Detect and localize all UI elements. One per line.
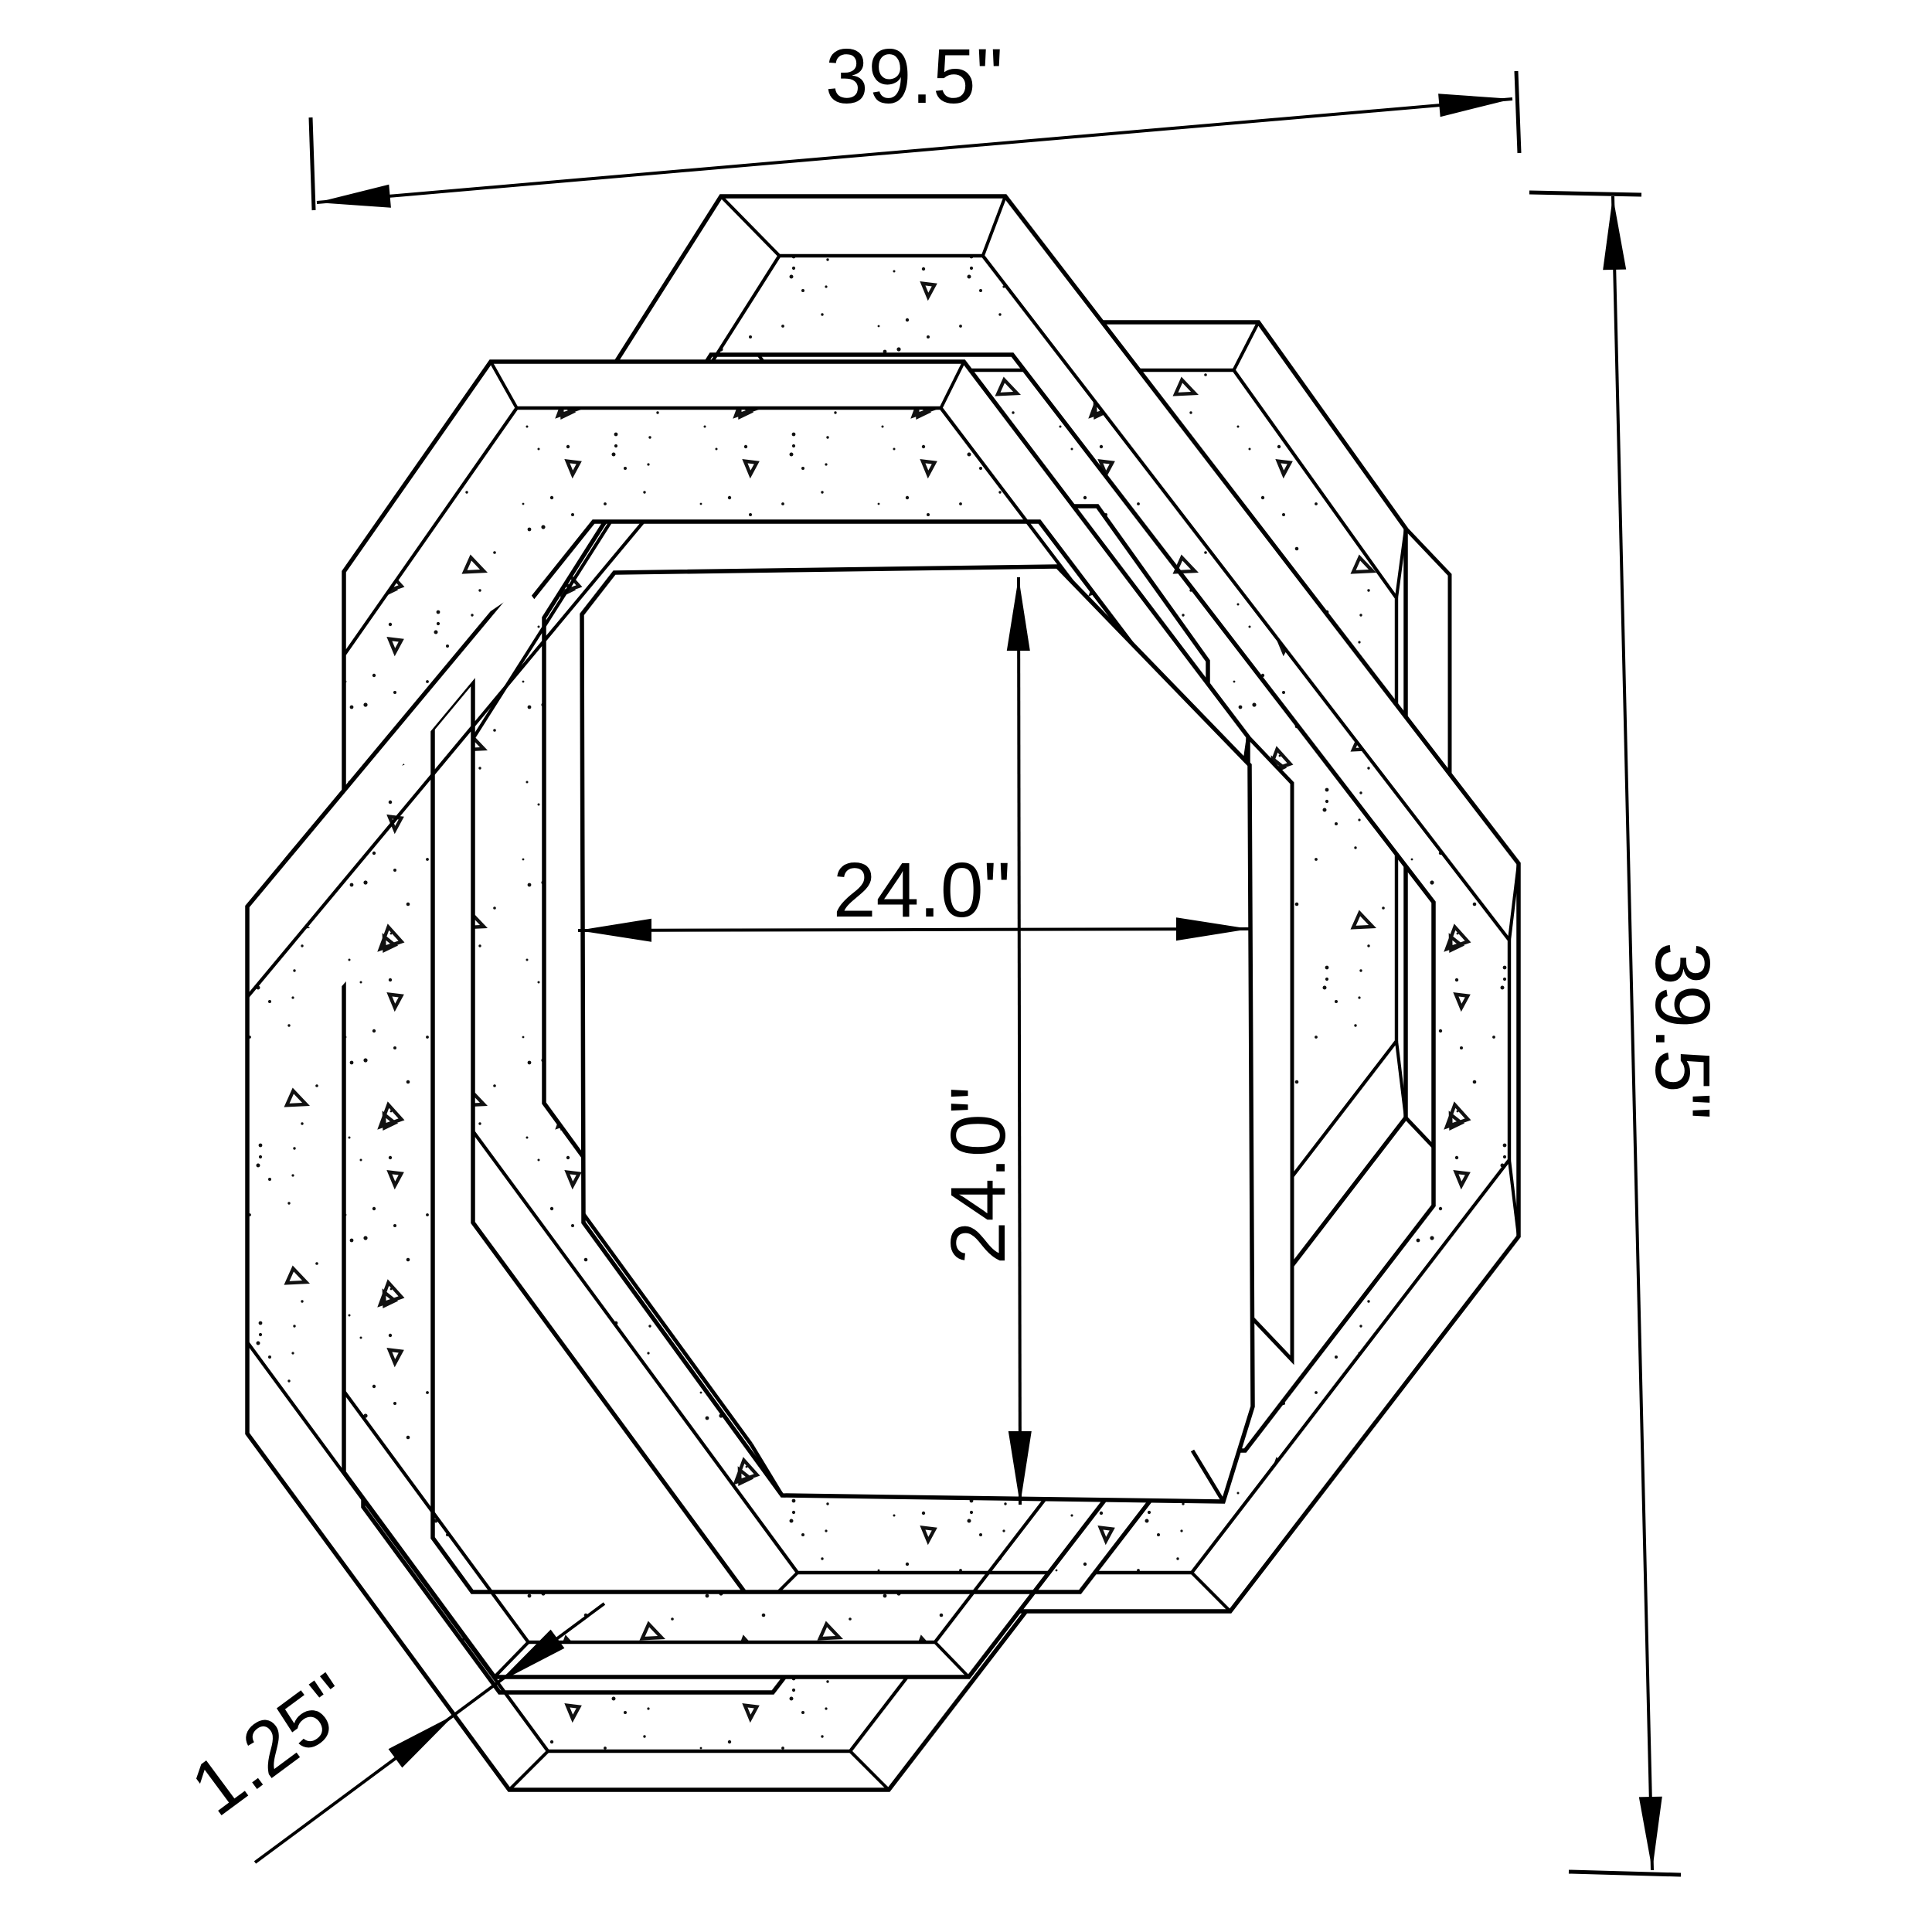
svg-text:39.5": 39.5" [1639, 942, 1726, 1120]
svg-text:39.5": 39.5" [825, 33, 1003, 120]
svg-text:24.0": 24.0" [935, 1087, 1022, 1264]
svg-text:24.0": 24.0" [833, 847, 1011, 934]
